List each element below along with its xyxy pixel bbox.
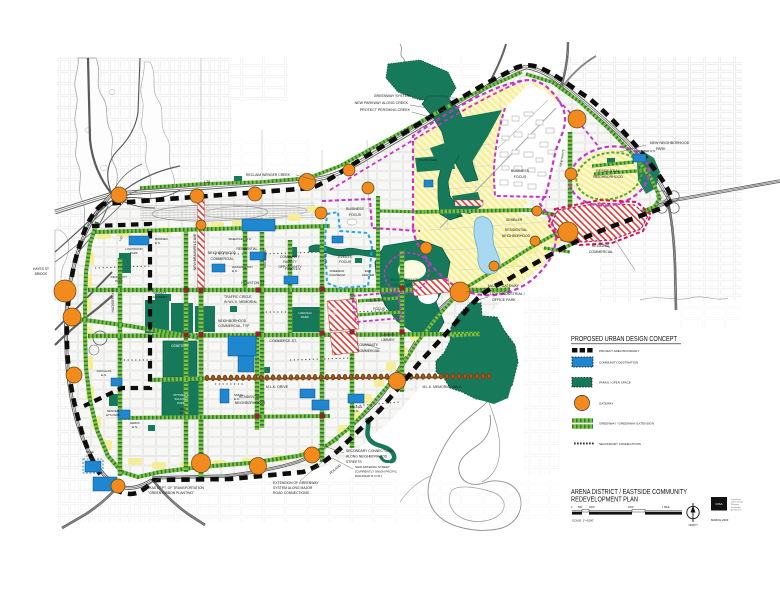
svg-text:I-35: I-35	[204, 180, 210, 184]
svg-text:PARKS / OPEN SPACE: PARKS / OPEN SPACE	[599, 381, 631, 385]
svg-text:M.L.K. DRIVE: M.L.K. DRIVE	[266, 385, 289, 389]
svg-text:NEIGHBORHOOD: NEIGHBORHOOD	[208, 251, 237, 255]
svg-text:REDEVELOPMENT PLAN: REDEVELOPMENT PLAN	[571, 495, 638, 504]
svg-text:COMMERCIAL: COMMERCIAL	[211, 257, 234, 261]
svg-text:HACKBERRY ST: HACKBERRY ST	[111, 288, 115, 313]
svg-text:PARK: PARK	[301, 315, 309, 319]
svg-text:E.S.: E.S.	[101, 373, 107, 377]
svg-text:PARK: PARK	[656, 147, 666, 151]
svg-text:PARK: PARK	[115, 279, 123, 283]
svg-text:NEW NEIGHBORHOOD: NEW NEIGHBORHOOD	[650, 141, 690, 145]
svg-text:GOLF COURSE: GOLF COURSE	[392, 283, 415, 287]
svg-text:COMMUNITY DESTINATION: COMMUNITY DESTINATION	[599, 361, 638, 365]
svg-text:2000': 2000'	[628, 506, 634, 509]
svg-text:COMMERCE ST.: COMMERCE ST.	[269, 339, 297, 343]
svg-text:WILLOW SPRINGS: WILLOW SPRINGS	[390, 278, 418, 282]
svg-text:RESIDENTIAL: RESIDENTIAL	[237, 247, 258, 251]
svg-text:NEW PARKWAY ALONG CREEK: NEW PARKWAY ALONG CREEK	[355, 101, 409, 105]
svg-text:PREMIER H.S.: PREMIER H.S.	[636, 149, 656, 153]
svg-text:SECONDARY CONNECTIONS: SECONDARY CONNECTIONS	[599, 442, 641, 446]
svg-text:1 MILE: 1 MILE	[662, 506, 670, 509]
svg-text:TOWN: TOWN	[327, 307, 337, 311]
svg-text:ROAD CONNECTIONS: ROAD CONNECTIONS	[273, 491, 310, 495]
svg-text:LIBRARY: LIBRARY	[381, 338, 395, 342]
svg-text:1000': 1000'	[589, 506, 595, 509]
svg-text:ALONG NEIGHBORHOOD: ALONG NEIGHBORHOOD	[346, 455, 388, 459]
svg-text:HAYES ST: HAYES ST	[33, 267, 49, 271]
svg-text:GREENWAY SYSTEM: GREENWAY SYSTEM	[374, 94, 410, 98]
svg-text:E.S.: E.S.	[234, 397, 240, 401]
svg-text:CARVER: CARVER	[381, 333, 395, 337]
svg-text:RECLAIM WENGER CREEK: RECLAIM WENGER CREEK	[246, 173, 291, 177]
svg-text:COMMUNITY: COMMUNITY	[357, 343, 379, 347]
svg-text:NEW ARTERIAL STREET: NEW ARTERIAL STREET	[355, 465, 390, 469]
svg-text:NEW BRAUNFELS AVE: NEW BRAUNFELS AVE	[193, 233, 197, 270]
svg-text:SECONDARY CONNECTIONS: SECONDARY CONNECTIONS	[346, 449, 394, 453]
svg-text:LIGHT INDUSTRIAL /: LIGHT INDUSTRIAL /	[490, 292, 525, 296]
svg-text:500': 500'	[578, 506, 583, 509]
svg-text:Architecture: Architecture	[731, 508, 743, 511]
svg-text:GEVERS ST: GEVERS ST	[323, 249, 327, 266]
svg-text:WHEATLEY M.S.: WHEATLEY M.S.	[228, 237, 251, 241]
svg-text:MAJOR GATEWAY: MAJOR GATEWAY	[488, 284, 519, 288]
svg-text:BUSINESS: BUSINESS	[368, 299, 386, 303]
svg-text:SYSTEM ALONG MAJOR: SYSTEM ALONG MAJOR	[273, 486, 313, 490]
svg-text:CEMETERY: CEMETERY	[171, 344, 190, 348]
svg-text:NEIGHBORHOOD: NEIGHBORHOOD	[502, 234, 531, 238]
svg-text:STREETS: STREETS	[346, 460, 362, 464]
svg-text:COMMUNITY: COMMUNITY	[280, 255, 301, 259]
svg-text:NEIGHBORHOOD: NEIGHBORHOOD	[218, 319, 247, 323]
svg-text:PROPOSED URBAN DESIGN CONCEPT: PROPOSED URBAN DESIGN CONCEPT	[571, 336, 678, 343]
svg-text:COMMERCIAL: COMMERCIAL	[589, 250, 613, 254]
svg-text:CENTER: CENTER	[362, 273, 375, 277]
svg-text:GREENWAY / GREENWAY EXTENSION: GREENWAY / GREENWAY EXTENSION	[599, 422, 654, 426]
svg-text:M.S.: M.S.	[180, 411, 186, 415]
svg-text:NEIGHBORHOODS: NEIGHBORHOODS	[235, 401, 266, 405]
svg-text:RESIDENTIAL: RESIDENTIAL	[596, 169, 620, 173]
svg-text:(CURRENTLY UNION PACIFIC: (CURRENTLY UNION PACIFIC	[355, 470, 398, 474]
svg-text:CISA: CISA	[715, 502, 722, 506]
svg-text:Consulting: Consulting	[731, 498, 740, 501]
svg-text:PARK: PARK	[130, 251, 138, 255]
svg-text:OFFICE PARK: OFFICE PARK	[492, 298, 516, 302]
svg-text:PARK: PARK	[177, 401, 185, 405]
svg-text:IN W.L.K. MEMORIAL: IN W.L.K. MEMORIAL	[224, 300, 257, 304]
svg-text:WALTERS ST: WALTERS ST	[263, 248, 267, 268]
svg-text:ACADEMY: ACADEMY	[153, 295, 168, 299]
svg-text:RAILROAD R.O.W.): RAILROAD R.O.W.)	[355, 474, 382, 478]
svg-text:E.S.: E.S.	[353, 409, 359, 413]
svg-text:NEIGHBORHOOD: NEIGHBORHOOD	[593, 175, 623, 179]
svg-text:KOA: KOA	[457, 214, 463, 218]
svg-text:E.S.: E.S.	[232, 269, 238, 273]
svg-text:FOCUS: FOCUS	[514, 175, 527, 179]
svg-text:COMMERCIAL, TYP: COMMERCIAL, TYP	[218, 324, 250, 328]
svg-text:FOCUS: FOCUS	[373, 307, 386, 311]
svg-text:HTS PARK: HTS PARK	[106, 413, 120, 417]
svg-text:REGIONAL: REGIONAL	[592, 244, 611, 248]
svg-text:GEMBLER: GEMBLER	[506, 218, 523, 222]
svg-text:EVENTS: EVENTS	[338, 255, 352, 259]
svg-text:BUSINESS: BUSINESS	[511, 169, 530, 173]
svg-text:E.S.: E.S.	[155, 241, 161, 245]
svg-text:FACILITY: FACILITY	[283, 260, 298, 264]
svg-text:BRIDGE: BRIDGE	[35, 272, 48, 276]
svg-text:M.L.K. MEMORIAL WALK: M.L.K. MEMORIAL WALK	[422, 385, 462, 389]
svg-text:"GREEN RIBBON PLANTING": "GREEN RIBBON PLANTING"	[148, 491, 195, 495]
svg-text:TEXAS DEPT. OF TRANSPORTATION: TEXAS DEPT. OF TRANSPORTATION	[145, 486, 204, 490]
svg-text:COLISEUM: COLISEUM	[329, 273, 345, 277]
svg-text:CENTER: CENTER	[325, 312, 339, 316]
svg-text:HOUSTON ST: HOUSTON ST	[241, 281, 265, 285]
svg-text:SCALE: 1"=1000': SCALE: 1"=1000'	[572, 519, 594, 523]
svg-text:TRAFFIC CIRCLE: TRAFFIC CIRCLE	[224, 295, 252, 299]
svg-text:E.S.: E.S.	[132, 425, 138, 429]
svg-text:PLUTE PARK: PLUTE PARK	[419, 158, 436, 162]
svg-text:PROTECT PERSHING CREEK: PROTECT PERSHING CREEK	[360, 108, 411, 112]
svg-text:FOCUS: FOCUS	[339, 260, 352, 264]
svg-text:PROJECT AREA BOUNDARY: PROJECT AREA BOUNDARY	[599, 349, 639, 353]
svg-text:BUSINESS: BUSINESS	[346, 207, 364, 211]
svg-text:RESIDENTIAL: RESIDENTIAL	[505, 228, 527, 232]
svg-text:FOCUS: FOCUS	[349, 213, 362, 217]
svg-text:GATEWAY: GATEWAY	[599, 402, 613, 406]
svg-text:J.H.S.: J.H.S.	[86, 454, 94, 458]
svg-text:MARCH 2003: MARCH 2003	[711, 518, 729, 522]
svg-text:EXTENSION OF GREENWAY: EXTENSION OF GREENWAY	[273, 481, 319, 485]
svg-text:TYNAN E.S.: TYNAN E.S.	[285, 267, 302, 271]
svg-text:NORTH: NORTH	[689, 524, 698, 527]
svg-text:COMMERCIAL: COMMERCIAL	[357, 349, 380, 353]
